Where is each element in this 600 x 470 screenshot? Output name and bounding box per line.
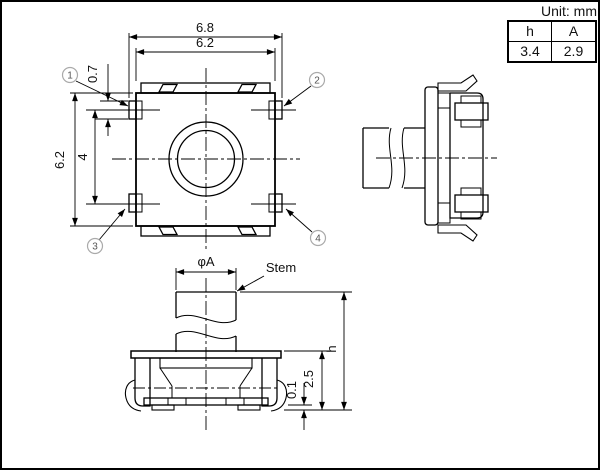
dim-standoff-label: 0.1 (284, 381, 299, 399)
dim-terminal-height-label: 0.7 (85, 65, 100, 83)
callout-4: 4 (286, 209, 326, 246)
terminal-bottom-right (275, 194, 282, 212)
dim-body-height-front: 2.5 (284, 351, 330, 410)
mount-hook-bottom (438, 225, 477, 241)
callout-4-label: 4 (315, 234, 321, 245)
callout-3: 3 (88, 209, 126, 254)
stem-callout: Stem (237, 260, 296, 291)
dim-stem-diameter-label: φA (197, 254, 214, 269)
mount-hook-top (438, 75, 477, 91)
dim-outer-width-label: 6.8 (196, 20, 214, 35)
dim-terminal-height: 0.7 (85, 64, 128, 136)
spec-table-value-h: 3.4 (509, 42, 552, 62)
drawing-canvas: 6.8 6.2 6.2 4 0.7 (0, 0, 600, 470)
switch-body-outline (136, 93, 275, 226)
top-view (86, 68, 300, 250)
drawing-sheet: 6.8 6.2 6.2 4 0.7 (0, 0, 600, 470)
dim-total-height-label: h (324, 345, 339, 352)
front-view (125, 278, 286, 430)
j-hook-left (125, 380, 141, 411)
callout-3-label: 3 (92, 242, 98, 253)
stem-label: Stem (266, 260, 296, 275)
front-view-dimensions: φA Stem h 2.5 0.1 (176, 254, 352, 430)
side-cover-plate (425, 87, 438, 225)
foot-left (152, 405, 174, 410)
top-view-dimensions: 6.8 6.2 6.2 4 0.7 (52, 20, 282, 226)
dim-outer-width: 6.8 (129, 20, 282, 98)
dim-body-height-front-label: 2.5 (301, 370, 316, 388)
side-view (363, 75, 497, 241)
cover-tab (238, 227, 256, 235)
foot-right (238, 405, 260, 410)
spec-table-header-h: h (509, 22, 552, 42)
terminal-center-marks (86, 110, 296, 204)
dim-body-width: 6.2 (136, 35, 275, 81)
unit-label: Unit: mm (440, 3, 597, 19)
callout-1-label: 1 (67, 71, 73, 82)
dim-terminal-pitch: 4 (75, 110, 95, 204)
terminal-bottom-left (129, 194, 136, 212)
cover-tab (238, 85, 256, 93)
centerlines (112, 68, 300, 250)
dim-terminal-pitch-label: 4 (75, 153, 90, 160)
dim-body-width-label: 6.2 (196, 35, 214, 50)
cover-tab (159, 227, 177, 235)
dim-body-height: 6.2 (52, 93, 133, 226)
callout-2: 2 (284, 73, 325, 107)
front-leg-left (135, 358, 150, 406)
spec-table-value-a: 2.9 (552, 42, 595, 62)
spec-table: h A 3.4 2.9 (507, 20, 597, 63)
callout-2-label: 2 (314, 76, 320, 87)
cover-tab (159, 85, 177, 93)
spec-table-header-a: A (552, 22, 595, 42)
dim-body-height-label: 6.2 (52, 151, 67, 169)
front-leg-right (262, 358, 277, 406)
